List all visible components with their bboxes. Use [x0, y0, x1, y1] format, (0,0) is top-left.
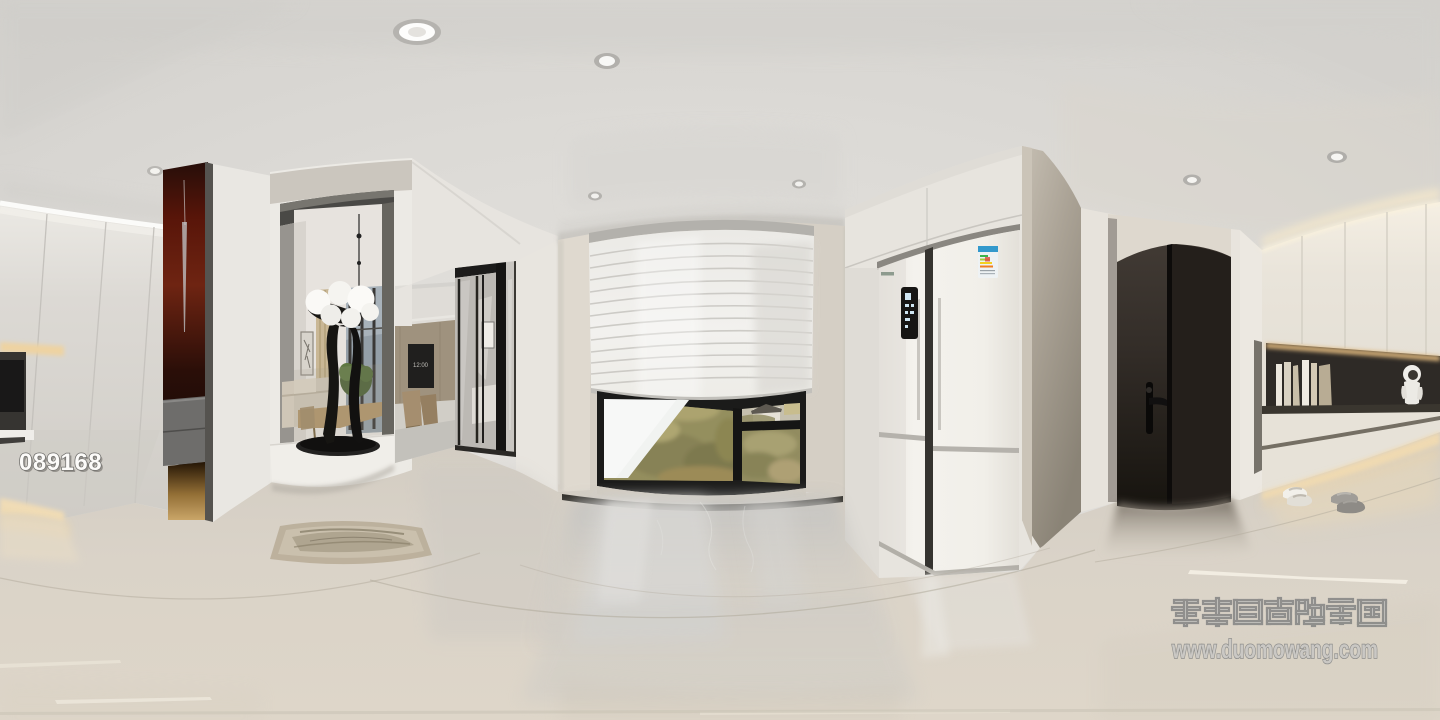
svg-text:089168: 089168: [19, 449, 102, 476]
svg-text:www.duomowang.com: www.duomowang.com: [1171, 634, 1378, 664]
